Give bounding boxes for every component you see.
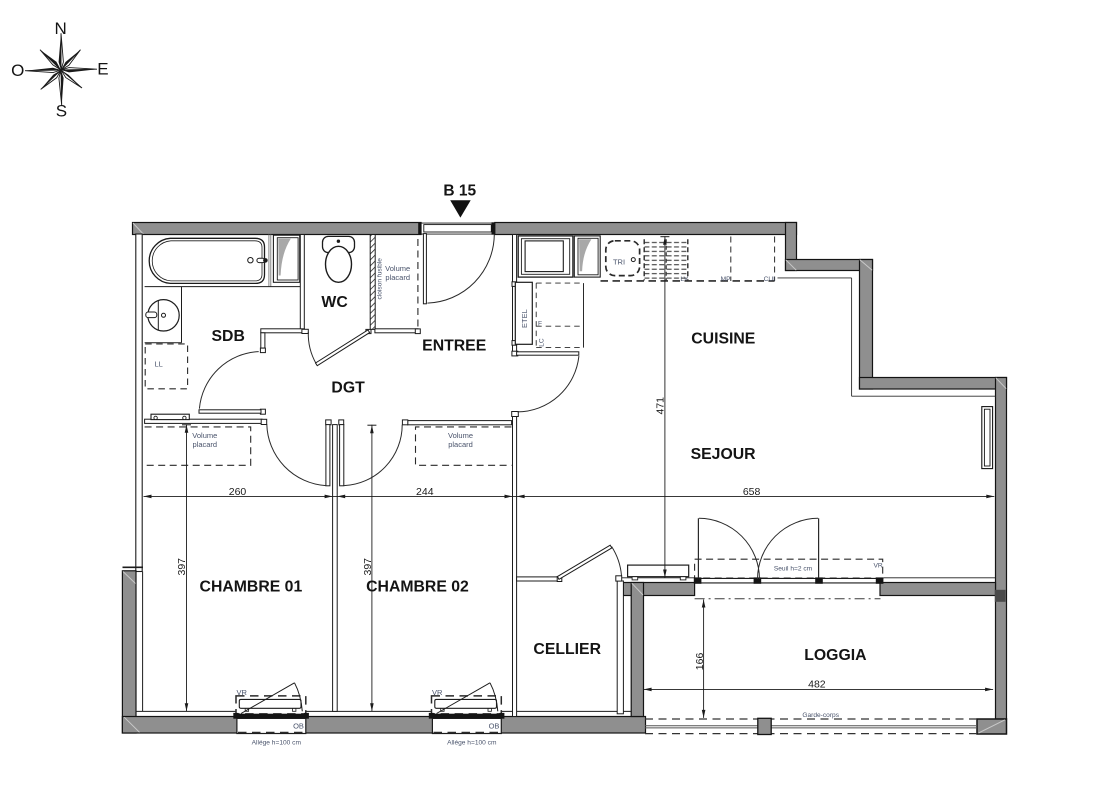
- svg-text:CUISINE: CUISINE: [691, 330, 755, 347]
- svg-text:397: 397: [362, 558, 374, 576]
- svg-text:CHAMBRE 01: CHAMBRE 01: [200, 579, 303, 596]
- svg-text:O: O: [11, 61, 24, 80]
- svg-text:F: F: [538, 320, 542, 327]
- svg-text:N: N: [54, 19, 66, 38]
- svg-text:WC: WC: [321, 294, 347, 311]
- svg-text:TRI: TRI: [613, 257, 625, 266]
- svg-text:244: 244: [416, 486, 434, 498]
- svg-text:DGT: DGT: [331, 380, 365, 397]
- svg-text:MP: MP: [721, 276, 731, 283]
- svg-text:LV: LV: [680, 276, 688, 283]
- svg-text:Garde-corps: Garde-corps: [802, 712, 839, 719]
- svg-text:OB: OB: [489, 722, 500, 731]
- svg-text:SDB: SDB: [212, 328, 245, 345]
- svg-text:LL: LL: [155, 360, 163, 369]
- svg-text:Seuil h=2 cm: Seuil h=2 cm: [774, 565, 813, 572]
- svg-text:placard: placard: [385, 273, 410, 282]
- svg-text:471: 471: [655, 397, 667, 415]
- svg-text:Allége h=100 cm: Allége h=100 cm: [447, 739, 497, 746]
- svg-text:CELLIER: CELLIER: [533, 641, 601, 658]
- svg-text:260: 260: [229, 486, 247, 498]
- svg-text:ENTREE: ENTREE: [422, 338, 486, 355]
- svg-text:Volume: Volume: [385, 264, 410, 273]
- svg-text:B 15: B 15: [443, 183, 476, 200]
- svg-text:CHAMBRE 02: CHAMBRE 02: [366, 579, 469, 596]
- svg-text:cloison fusible: cloison fusible: [377, 258, 384, 300]
- svg-text:E: E: [97, 60, 108, 79]
- svg-text:397: 397: [176, 558, 188, 576]
- svg-text:placard: placard: [448, 440, 473, 449]
- svg-text:Volume: Volume: [448, 431, 473, 440]
- svg-text:Allége h=100 cm: Allége h=100 cm: [252, 739, 302, 746]
- svg-text:placard: placard: [192, 440, 217, 449]
- svg-text:OB: OB: [293, 722, 304, 731]
- svg-text:S: S: [56, 101, 67, 120]
- svg-text:LC: LC: [539, 338, 546, 347]
- svg-text:CUI: CUI: [764, 276, 776, 283]
- svg-text:LOGGIA: LOGGIA: [804, 647, 866, 664]
- svg-text:166: 166: [694, 653, 706, 671]
- svg-text:482: 482: [808, 678, 826, 690]
- svg-text:VR: VR: [874, 562, 883, 569]
- svg-text:SEJOUR: SEJOUR: [691, 446, 757, 463]
- svg-text:658: 658: [743, 486, 761, 498]
- svg-text:ETEL: ETEL: [520, 309, 529, 328]
- svg-text:Volume: Volume: [192, 431, 217, 440]
